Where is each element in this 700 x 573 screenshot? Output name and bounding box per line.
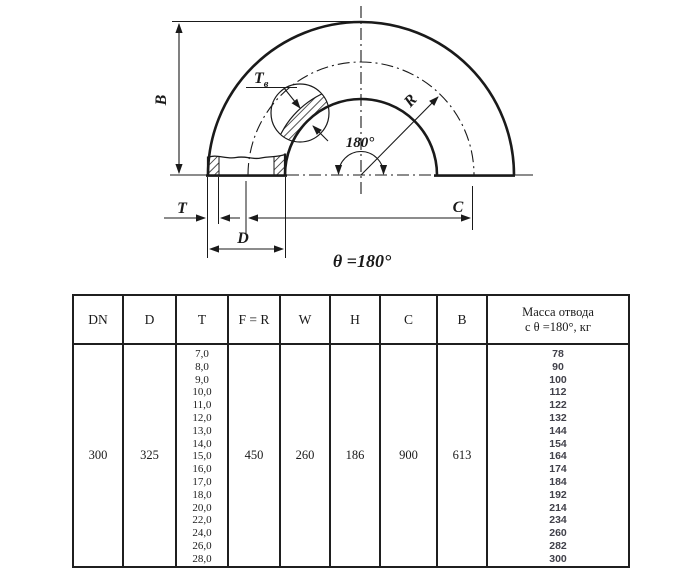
break-line: [208, 155, 285, 159]
mass-header-line2: с θ =180°, кг: [488, 320, 628, 335]
cell-fr: 450: [228, 344, 280, 567]
cell-d: 325: [123, 344, 176, 567]
dim-c: C: [249, 199, 470, 218]
header-row: DN D T F = R W H C B Масса отвода с θ =1…: [73, 295, 629, 344]
cell-b: 613: [437, 344, 487, 567]
section-wall-hatch: [274, 155, 285, 176]
col-header-d: D: [123, 295, 176, 344]
cell-w: 260: [280, 344, 330, 567]
dim-label-b: B: [153, 94, 170, 106]
dim-label-d: D: [236, 230, 249, 247]
dim-t: T: [164, 200, 240, 218]
tb-lower-arrow: [313, 126, 328, 141]
cell-dn: 300: [73, 344, 123, 567]
mass-header-line1: Масса отвода: [488, 305, 628, 320]
bend-body: [208, 6, 514, 196]
spec-table: DN D T F = R W H C B Масса отвода с θ =1…: [72, 294, 630, 568]
col-header-c: C: [380, 295, 437, 344]
angle-label: 180°: [346, 135, 375, 151]
dim-label-c: C: [453, 199, 464, 216]
dim-r: R: [361, 91, 438, 175]
drawing-caption: θ =180°: [333, 251, 392, 271]
mass-values-list: 7890100112122132144154164174184192214234…: [488, 345, 628, 566]
dim-label-r: R: [400, 91, 421, 111]
dim-d: D: [210, 230, 283, 249]
cell-mass-values: 7890100112122132144154164174184192214234…: [487, 344, 629, 567]
col-header-dn: DN: [73, 295, 123, 344]
page: Tв B R 180° T: [0, 0, 700, 573]
cell-c: 900: [380, 344, 437, 567]
t-values-list: 7,08,09,010,011,012,013,014,015,016,017,…: [177, 345, 227, 566]
dim-label-t: T: [177, 200, 188, 217]
section-wall-hatch: [208, 156, 219, 175]
pipe-section: [208, 154, 285, 177]
tb-leader-arrow: [284, 88, 300, 108]
table-row: 300 325 7,08,09,010,011,012,013,014,015,…: [73, 344, 629, 567]
wall-hatch-crescent: [276, 90, 335, 149]
col-header-fr: F = R: [228, 295, 280, 344]
bend-drawing: Tв B R 180° T: [0, 0, 700, 290]
col-header-mass: Масса отвода с θ =180°, кг: [487, 295, 629, 344]
cell-t-values: 7,08,09,010,011,012,013,014,015,016,017,…: [176, 344, 228, 567]
col-header-h: H: [330, 295, 380, 344]
col-header-w: W: [280, 295, 330, 344]
col-header-b: B: [437, 295, 487, 344]
col-header-t: T: [176, 295, 228, 344]
wall-detail-balloon: Tв: [246, 70, 335, 149]
baseline: [170, 175, 533, 176]
cell-h: 186: [330, 344, 380, 567]
dim-b: B: [153, 22, 357, 174]
